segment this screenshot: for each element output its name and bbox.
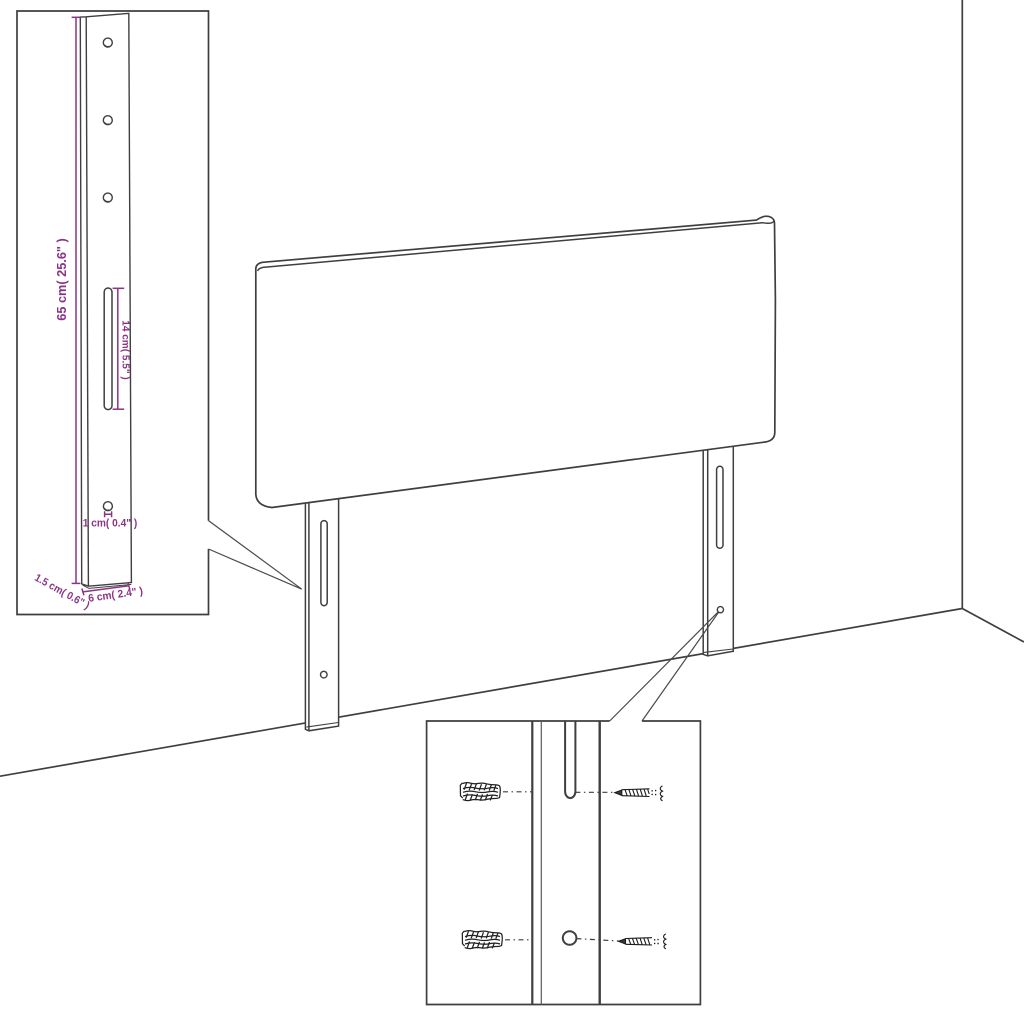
- svg-text:1 cm( 0.4" ): 1 cm( 0.4" ): [83, 518, 138, 530]
- svg-text:65 cm( 25.6" ): 65 cm( 25.6" ): [55, 238, 69, 321]
- svg-text:14 cm( 5.5" ): 14 cm( 5.5" ): [120, 320, 132, 380]
